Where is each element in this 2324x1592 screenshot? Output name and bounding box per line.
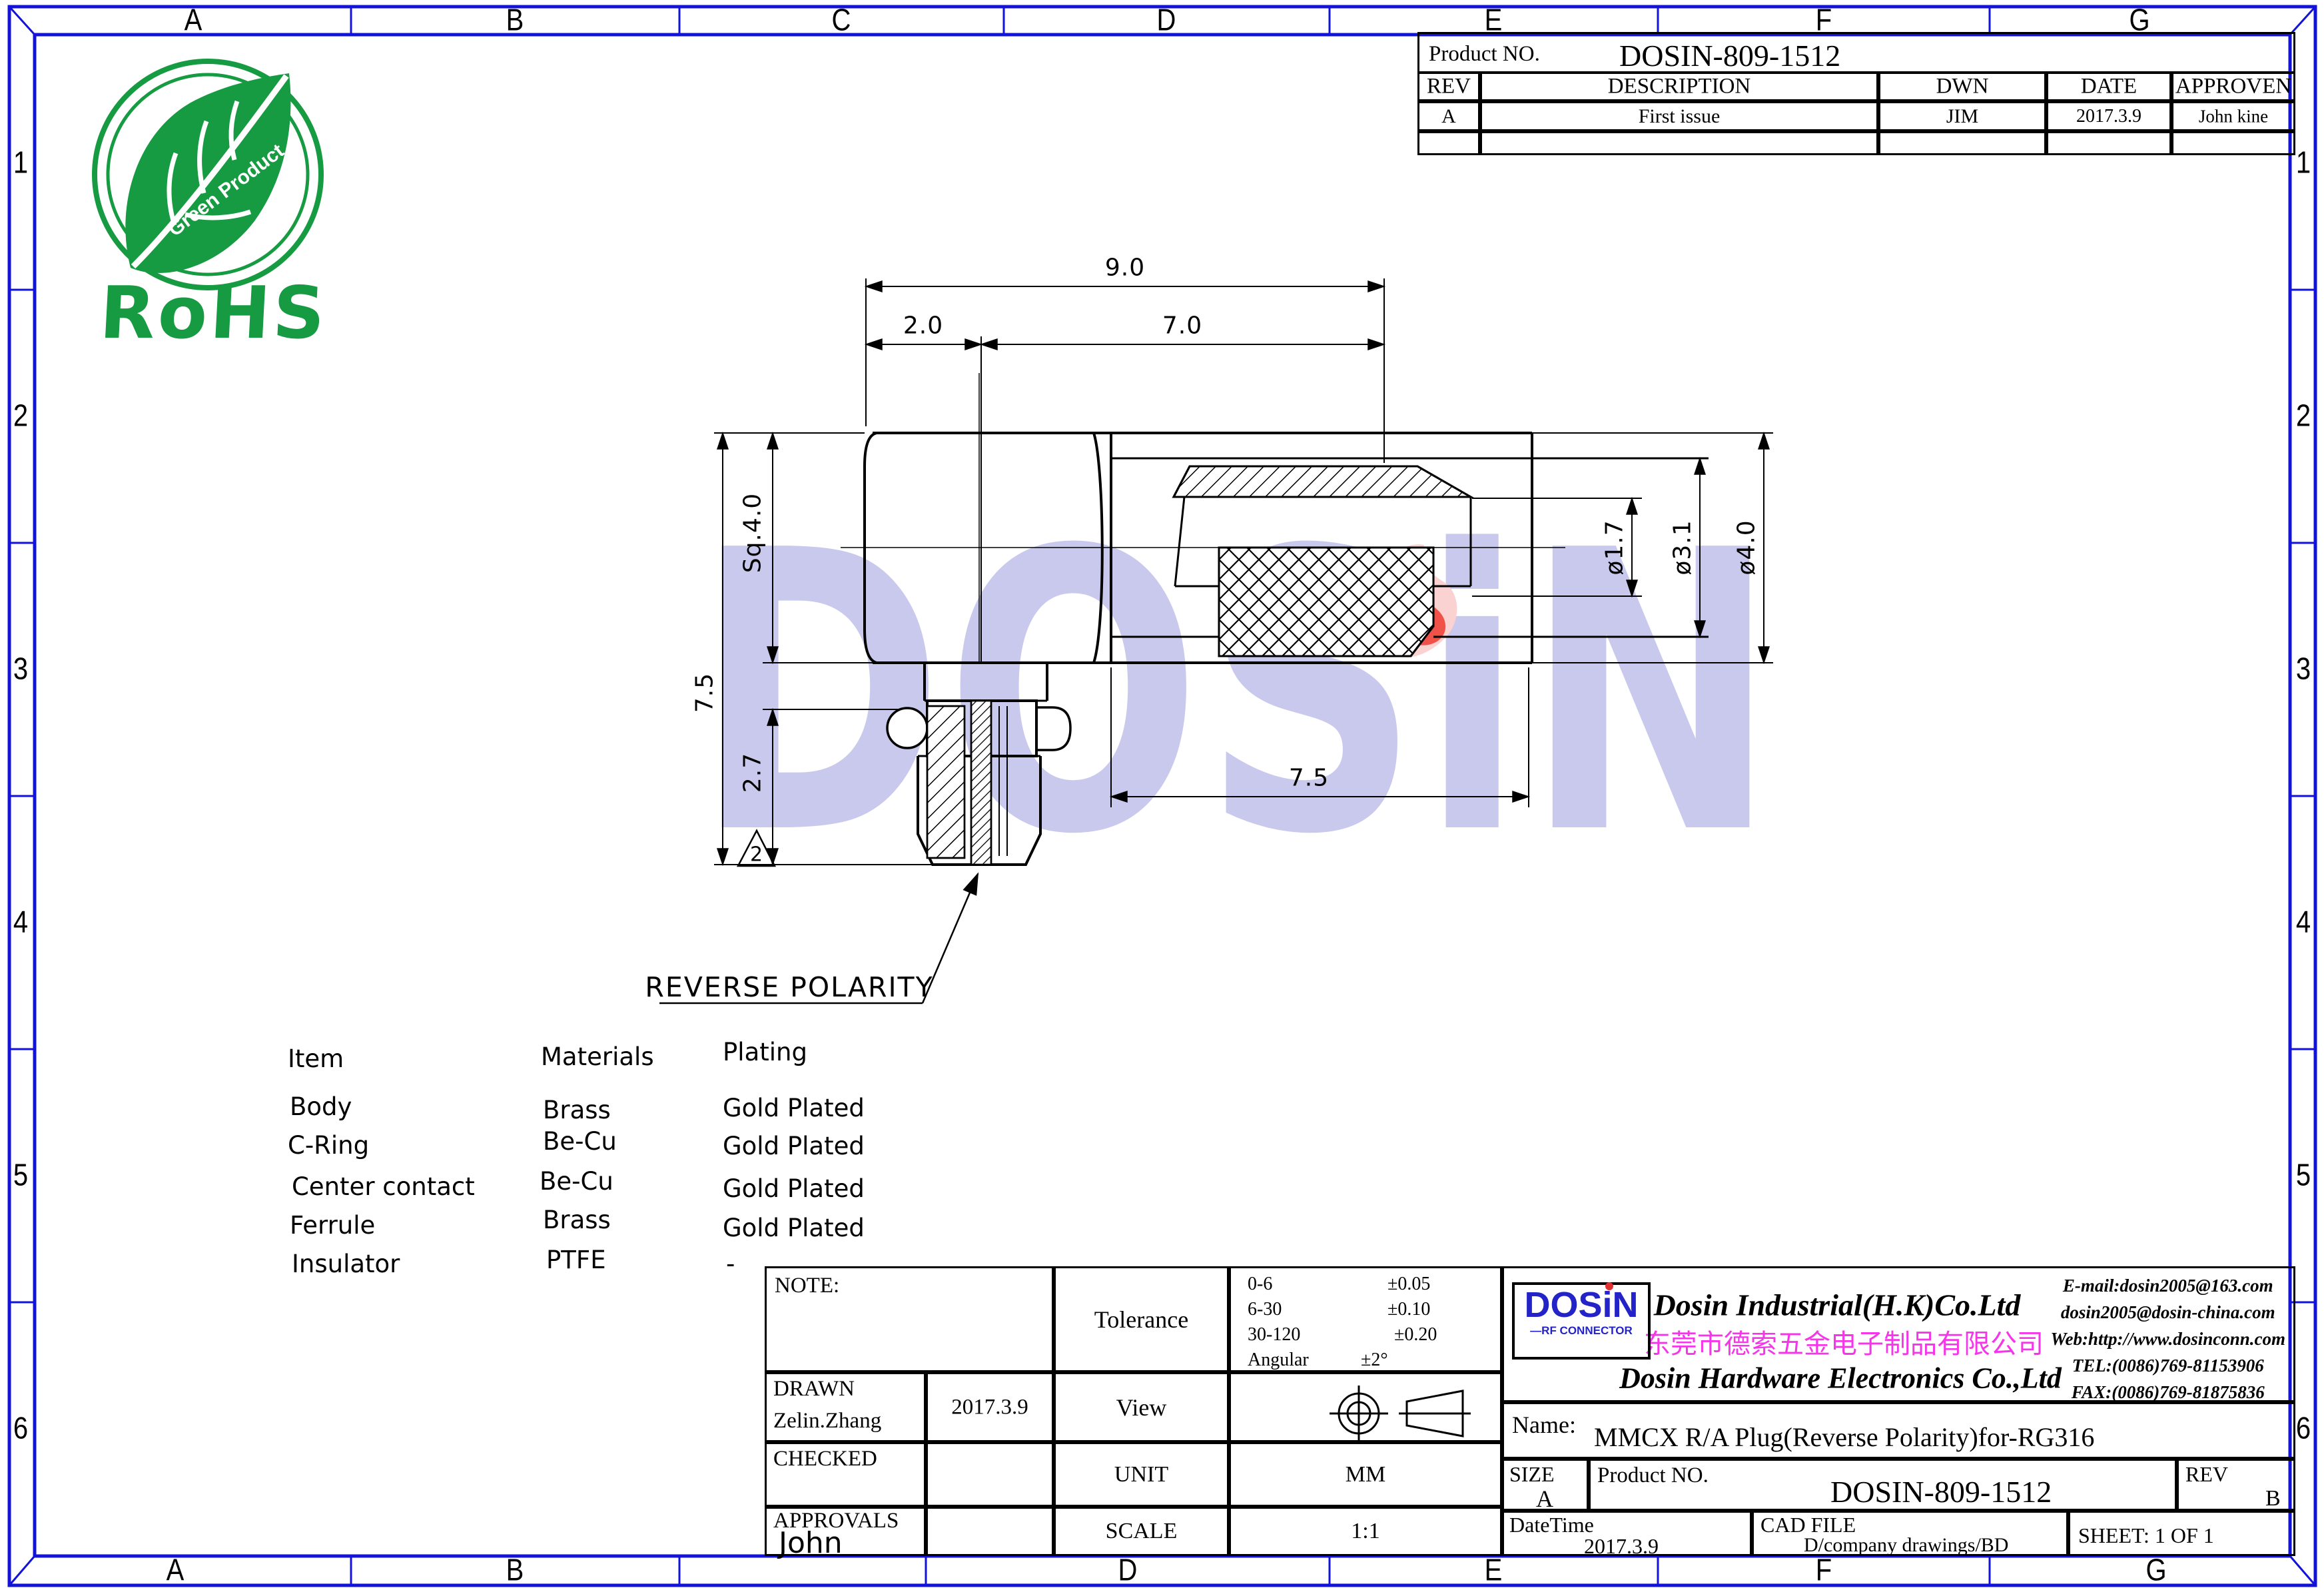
dim-body-square: Sq.4.0 — [739, 493, 767, 573]
tol-range: 30-120 — [1248, 1324, 1300, 1346]
material-row-material: Brass — [543, 1206, 611, 1234]
date-header: DATE — [2081, 75, 2137, 99]
size-cell: SIZE A — [1502, 1459, 1589, 1511]
dim-front-length: 2.0 — [903, 312, 943, 340]
zone-bottom-g: G — [2145, 1553, 2166, 1588]
view-label-cell: View — [1054, 1372, 1229, 1442]
rohs-title: RoHS — [98, 272, 330, 355]
contact-email2: dosin2005@dosin-china.com — [2050, 1299, 2285, 1326]
date-value: 2017.3.9 — [2076, 106, 2141, 127]
materials-header-item: Item — [288, 1044, 344, 1073]
drawn-label: DRAWN — [773, 1377, 855, 1401]
name-label: Name: — [1512, 1411, 1576, 1439]
material-row-plating: Gold Plated — [723, 1174, 865, 1203]
unit-value: MM — [1346, 1462, 1385, 1487]
datetime-label: DateTime — [1509, 1513, 1594, 1537]
contact-fax: FAX:(0086)769-81875836 — [2050, 1379, 2285, 1405]
material-row-item: Insulator — [292, 1250, 400, 1278]
zone-top-b: B — [506, 3, 524, 38]
name-cell: Name: MMCX R/A Plug(Reverse Polarity)for… — [1502, 1402, 2295, 1459]
product-no-label: Product NO. — [1429, 42, 1540, 67]
zone-right-1: 1 — [2296, 146, 2311, 181]
datetime-value: 2017.3.9 — [1584, 1534, 1659, 1559]
contact-tel: TEL:(0086)769-81153906 — [2050, 1352, 2285, 1379]
scale-value: 1:1 — [1351, 1519, 1379, 1544]
drawn-date: 2017.3.9 — [951, 1395, 1028, 1419]
dim-dia-inner: ø1.7 — [1601, 520, 1629, 575]
dosin-logo-subtitle: —RF CONNECTOR — [1515, 1325, 1648, 1337]
zone-left-2: 2 — [13, 399, 28, 434]
contact-email: E-mail:dosin2005@163.com — [2050, 1272, 2285, 1299]
sheet-cell: SHEET: 1 OF 1 — [2068, 1511, 2295, 1556]
materials-header-materials: Materials — [541, 1042, 654, 1071]
rohs-logo-icon: Green Product — [95, 61, 321, 288]
zone-left-1: 1 — [13, 146, 28, 181]
size-value: A — [1536, 1485, 1553, 1513]
tol-value: ±0.05 — [1387, 1274, 1430, 1295]
tol-value: ±2° — [1361, 1350, 1388, 1371]
scale-label: SCALE — [1106, 1519, 1178, 1544]
approven-header: APPROVEN — [2175, 75, 2291, 99]
zone-right-3: 3 — [2296, 652, 2311, 687]
datetime-cell: DateTime 2017.3.9 — [1502, 1511, 1752, 1556]
dosin-logo-text: DOSiN — [1515, 1285, 1648, 1325]
tol-range: 0-6 — [1248, 1274, 1272, 1295]
cadfile-value: D/company drawings/BD — [1804, 1534, 2008, 1557]
reverse-polarity-callout: REVERSE POLARITY — [645, 971, 933, 1003]
contact-web: Web:http://www.dosinconn.com — [2050, 1326, 2285, 1352]
drawn-date-cell: 2017.3.9 — [926, 1372, 1054, 1442]
approvals-cell: APPROVALS John — [765, 1507, 926, 1556]
material-row-material: PTFE — [546, 1246, 606, 1274]
zone-right-6: 6 — [2296, 1411, 2311, 1446]
approven-value: John kine — [2199, 106, 2268, 127]
material-row-item: Ferrule — [290, 1211, 375, 1240]
dim-dia-outer: ø4.0 — [1733, 520, 1760, 575]
product-no-cell: Product NO. DOSIN-809-1512 — [1589, 1459, 2177, 1511]
sheet-value: SHEET: 1 OF 1 — [2078, 1523, 2214, 1548]
product-no-value: DOSIN-809-1512 — [1619, 38, 1840, 73]
drawing-sheet: DOSiN — [0, 0, 2324, 1592]
revision-table-title-row: Product NO. DOSIN-809-1512 — [1417, 32, 2295, 73]
view-symbol-cell — [1229, 1372, 1502, 1442]
drawn-name: Zelin.Zhang — [773, 1409, 881, 1433]
company-name-cn: 东莞市德索五金电子制品有限公司 — [1644, 1322, 2044, 1361]
checked-cell: CHECKED — [765, 1442, 926, 1507]
scale-label-cell: SCALE — [1054, 1507, 1229, 1556]
tolerance-label-cell: Tolerance — [1054, 1266, 1229, 1372]
zone-bottom-a: A — [167, 1553, 185, 1588]
materials-header-plating: Plating — [723, 1038, 807, 1066]
rev-cell: REV B — [2177, 1459, 2295, 1511]
zone-bottom-d: D — [1118, 1553, 1138, 1588]
product-no-value2: DOSIN-809-1512 — [1830, 1474, 2052, 1509]
material-row-plating: - — [726, 1250, 735, 1278]
unit-label-cell: UNIT — [1054, 1442, 1229, 1507]
zone-left-5: 5 — [13, 1158, 28, 1193]
material-row-plating: Gold Plated — [723, 1214, 865, 1242]
dim-shell-length: 7.5 — [1289, 765, 1329, 792]
zone-top-a: A — [185, 3, 202, 38]
name-value: MMCX R/A Plug(Reverse Polarity)for-RG316 — [1594, 1421, 2094, 1453]
dim-lower-height: 2.7 — [739, 753, 767, 793]
material-row-material: Be-Cu — [540, 1167, 613, 1196]
rev-value2: B — [2265, 1486, 2281, 1511]
dim-rear-length: 7.0 — [1162, 312, 1202, 340]
approvals-name: John — [779, 1526, 843, 1560]
tol-value: ±0.20 — [1394, 1324, 1437, 1346]
dim-dia-mid: ø3.1 — [1669, 520, 1697, 575]
note-cell: NOTE: — [765, 1266, 1054, 1372]
cadfile-cell: CAD FILE D/company drawings/BD — [1752, 1511, 2068, 1556]
rev-label: REV — [2185, 1462, 2228, 1487]
note-label: NOTE: — [775, 1274, 839, 1298]
unit-label: UNIT — [1114, 1462, 1168, 1487]
zone-bottom-b: B — [506, 1553, 524, 1588]
rev-value: A — [1441, 105, 1456, 128]
tol-range: 6-30 — [1248, 1299, 1282, 1320]
material-row-material: Brass — [543, 1096, 611, 1124]
material-row-plating: Gold Plated — [723, 1094, 865, 1122]
scale-value-cell: 1:1 — [1229, 1507, 1502, 1556]
zone-top-c: C — [832, 3, 851, 38]
tolerance-values-cell: 0-6 ±0.05 6-30 ±0.10 30-120 ±0.20 Angula… — [1229, 1266, 1502, 1372]
zone-right-4: 4 — [2296, 905, 2311, 940]
tolerance-label: Tolerance — [1094, 1306, 1188, 1334]
material-row-material: Be-Cu — [543, 1127, 617, 1156]
view-label: View — [1116, 1393, 1167, 1421]
rev-header: REV — [1427, 75, 1471, 99]
zone-left-6: 6 — [13, 1411, 28, 1446]
zone-bottom-e: E — [1485, 1553, 1503, 1588]
material-row-item: Body — [290, 1092, 352, 1121]
dwn-value: JIM — [1946, 105, 1978, 128]
drawn-cell: DRAWN Zelin.Zhang — [765, 1372, 926, 1442]
zone-right-2: 2 — [2296, 399, 2311, 434]
surface-finish-mark: 2 — [750, 843, 763, 867]
material-row-item: Center contact — [292, 1172, 475, 1201]
zone-left-3: 3 — [13, 652, 28, 687]
dim-total-length: 9.0 — [1105, 254, 1145, 282]
checked-label: CHECKED — [773, 1447, 877, 1471]
company-name-en: Dosin Industrial(H.K)Co.Ltd — [1654, 1288, 2021, 1323]
zone-right-5: 5 — [2296, 1158, 2311, 1193]
tol-range: Angular — [1248, 1350, 1309, 1371]
tol-value: ±0.10 — [1387, 1299, 1430, 1320]
size-label: SIZE — [1509, 1462, 1555, 1487]
unit-value-cell: MM — [1229, 1442, 1502, 1507]
company-name-en2: Dosin Hardware Electronics Co.,Ltd — [1619, 1362, 2062, 1395]
dosin-logo: DOSiN —RF CONNECTOR — [1512, 1282, 1651, 1360]
dim-total-height: 7.5 — [691, 673, 719, 713]
description-header: DESCRIPTION — [1608, 75, 1751, 99]
material-row-item: C-Ring — [288, 1131, 369, 1160]
material-row-plating: Gold Plated — [723, 1132, 865, 1160]
zone-left-4: 4 — [13, 905, 28, 940]
zone-top-d: D — [1157, 3, 1176, 38]
zone-bottom-f: F — [1816, 1553, 1832, 1588]
description-value: First issue — [1639, 105, 1721, 128]
dwn-header: DWN — [1936, 75, 1989, 99]
product-no-label2: Product NO. — [1597, 1463, 1709, 1488]
